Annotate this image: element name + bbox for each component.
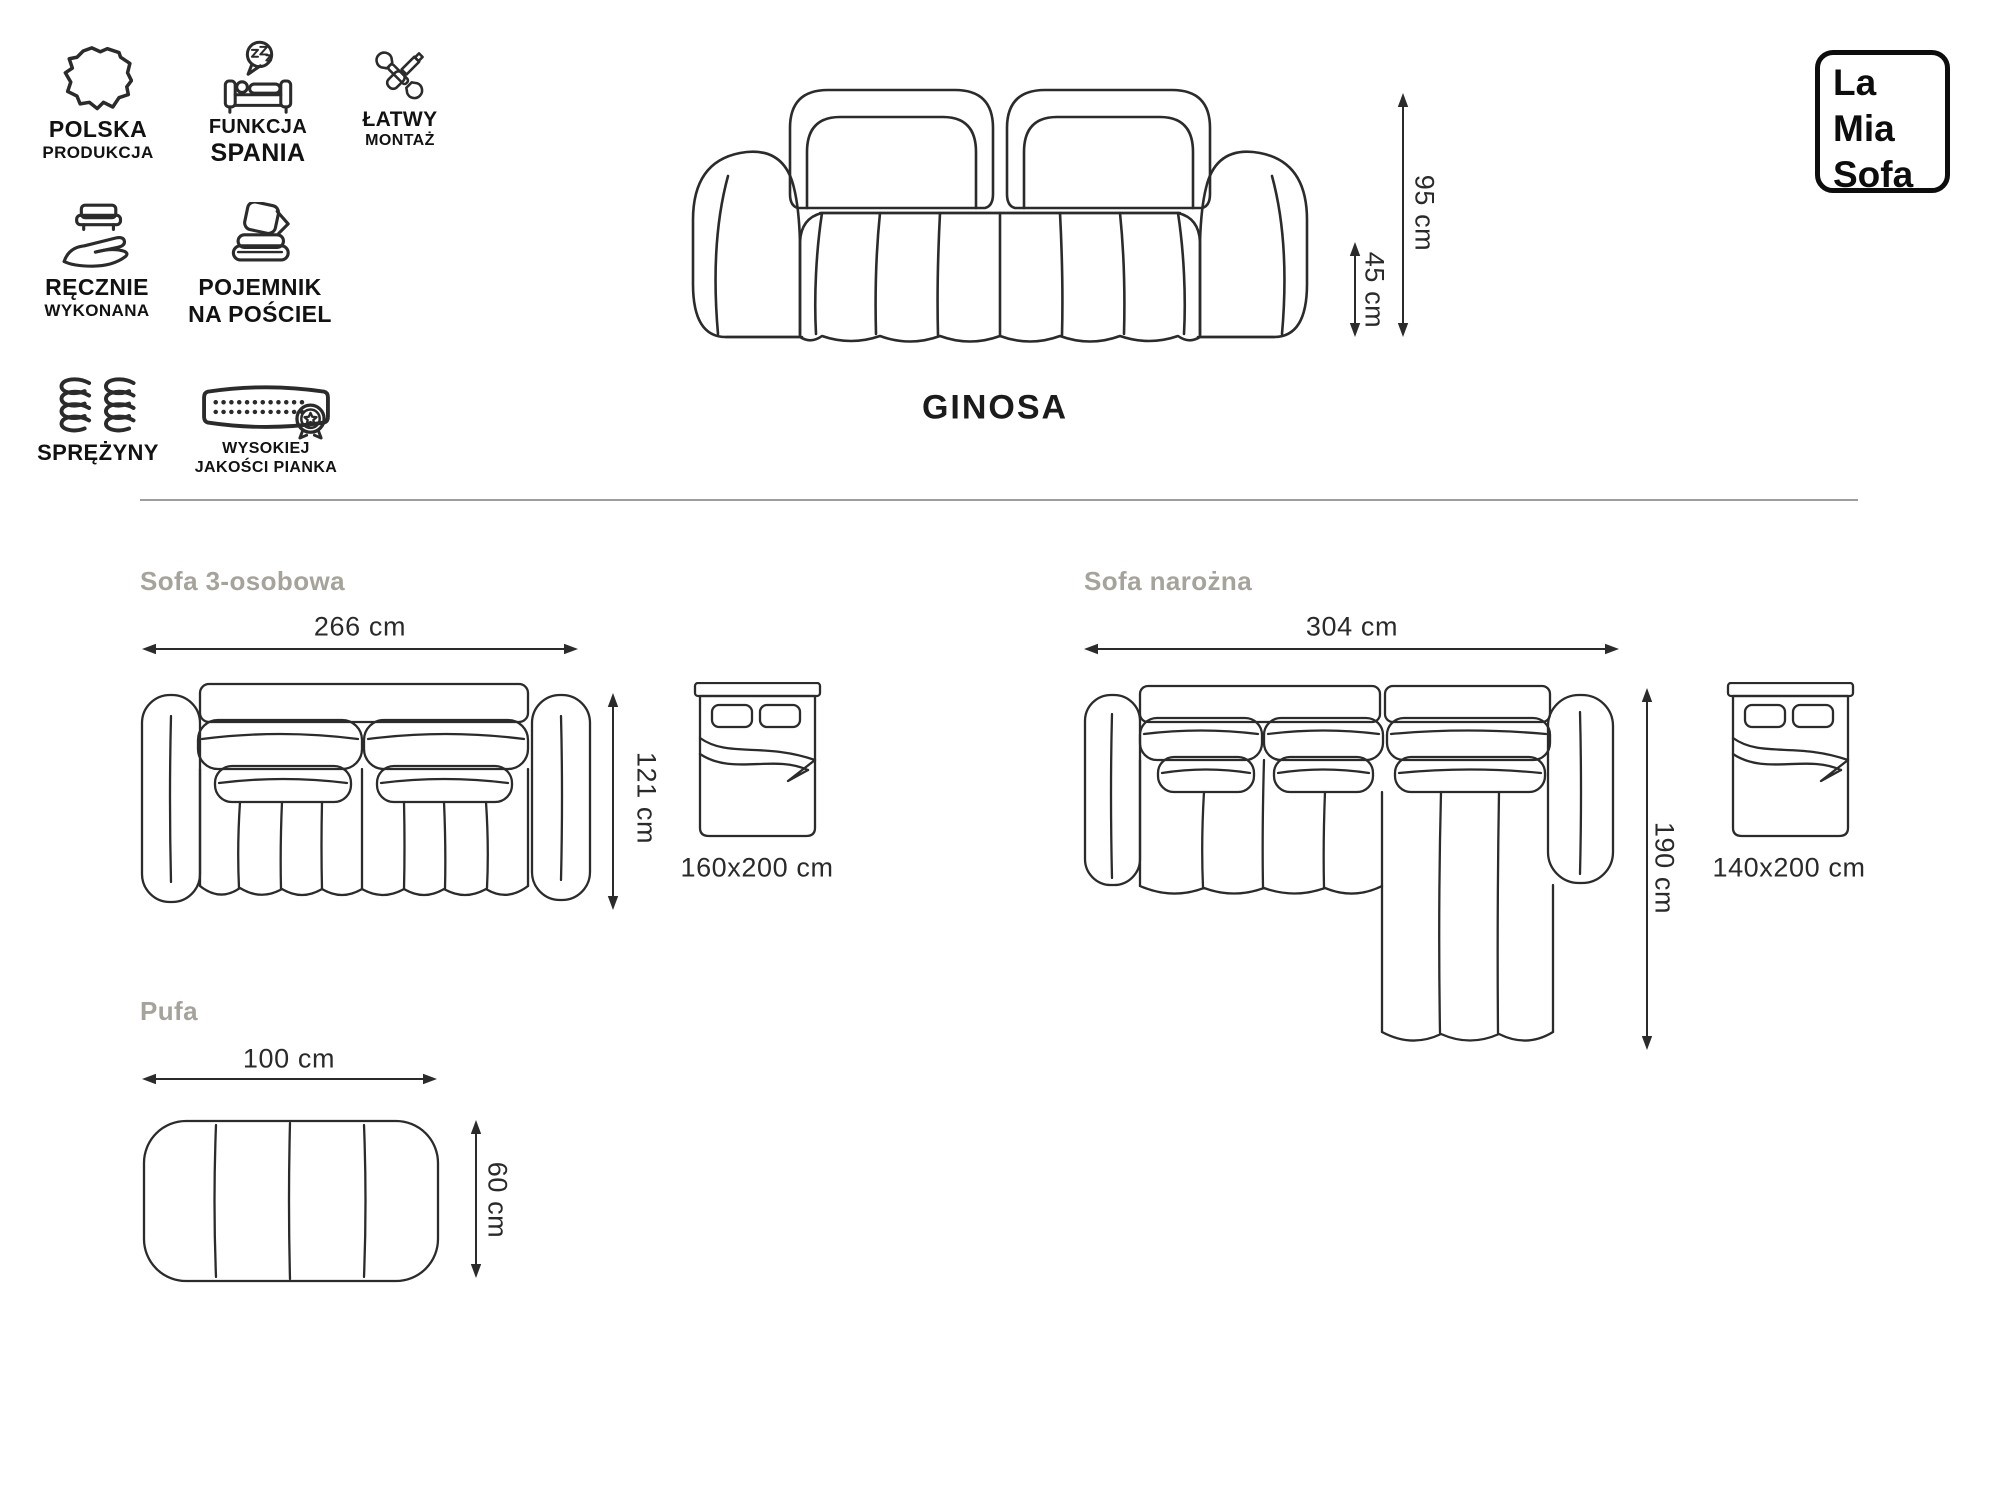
badge-pojemnik-na-posciel: POJEMNIK NA POŚCIEL [182,202,338,327]
badge-label: SPRĘŻYNY [36,440,160,466]
badge-sublabel: MONTAŻ [328,132,472,151]
poland-map-icon [63,42,133,116]
badge-sublabel: SPANIA [185,139,331,168]
spec-sheet: POLSKA PRODUKCJA FUNKCJA SPANIA [0,0,2000,1500]
badge-label: ŁATWY [328,108,472,132]
sofa3-bed-size-label: 160x200 cm [680,853,833,884]
pufa-width-dimension-arrow [142,1071,437,1087]
sleep-function-icon [215,40,301,116]
la-mia-sofa-logo: La Mia Sofa [1815,50,1950,193]
seat-height-dimension-label: 45 cm [1359,252,1390,329]
badge-polska-produkcja: POLSKA PRODUKCJA [36,42,160,162]
logo-line: Sofa [1833,152,1945,198]
pufa-top-view-drawing [142,1119,440,1283]
height-dimension-label: 95 cm [1409,175,1440,252]
badge-label: FUNKCJA [185,116,331,139]
badge-label: POLSKA [36,116,160,143]
badge-label: WYSOKIEJ [184,440,348,459]
badge-sublabel: NA POŚCIEL [182,301,338,328]
product-name: GINOSA [922,389,1068,428]
corner-width-dimension-arrow [1084,641,1619,657]
badge-recznie-wykonana: RĘCZNIE WYKONANA [35,202,159,320]
sofa3-top-view-drawing [140,682,592,914]
sofa3-width-label: 266 cm [314,612,406,643]
pufa-depth-label: 60 cm [482,1162,513,1239]
sofa3-depth-label: 121 cm [631,752,662,844]
logo-line: Mia [1833,106,1945,152]
section-title-sofa3: Sofa 3-osobowa [140,566,345,597]
badge-sublabel: PRODUKCJA [36,143,160,163]
handmade-icon [55,202,139,274]
corner-bed-size-label: 140x200 cm [1712,853,1865,884]
badge-funkcja-spania: FUNKCJA SPANIA [185,40,331,168]
corner-bed-icon [1721,682,1861,840]
badge-label: RĘCZNIE [35,274,159,301]
badge-wysokiej-jakosci-pianka: WYSOKIEJ JAKOŚCI PIANKA [184,380,348,477]
corner-depth-label: 190 cm [1649,822,1680,914]
sofa-front-view-drawing [680,72,1320,352]
section-title-pufa: Pufa [140,996,198,1027]
badge-latwy-montaz: ŁATWY MONTAŻ [328,44,472,151]
badge-sprezyny: SPRĘŻYNY [36,376,160,466]
badge-label: POJEMNIK [182,274,338,301]
sofa3-width-dimension-arrow [142,641,578,657]
springs-icon [52,376,144,440]
sofa3-bed-icon [688,682,828,840]
section-title-corner: Sofa narożna [1084,566,1252,597]
foam-quality-icon [198,380,334,440]
section-divider [140,499,1858,501]
badge-sublabel: JAKOŚCI PIANKA [184,459,348,478]
tools-icon [367,44,433,108]
bedding-storage-icon [218,202,302,274]
pufa-width-label: 100 cm [243,1044,335,1075]
badge-sublabel: WYKONANA [35,301,159,321]
corner-width-label: 304 cm [1306,612,1398,643]
sofa3-depth-dimension-arrow [605,693,621,910]
corner-sofa-top-view-drawing [1082,682,1622,1057]
logo-line: La [1833,60,1945,106]
